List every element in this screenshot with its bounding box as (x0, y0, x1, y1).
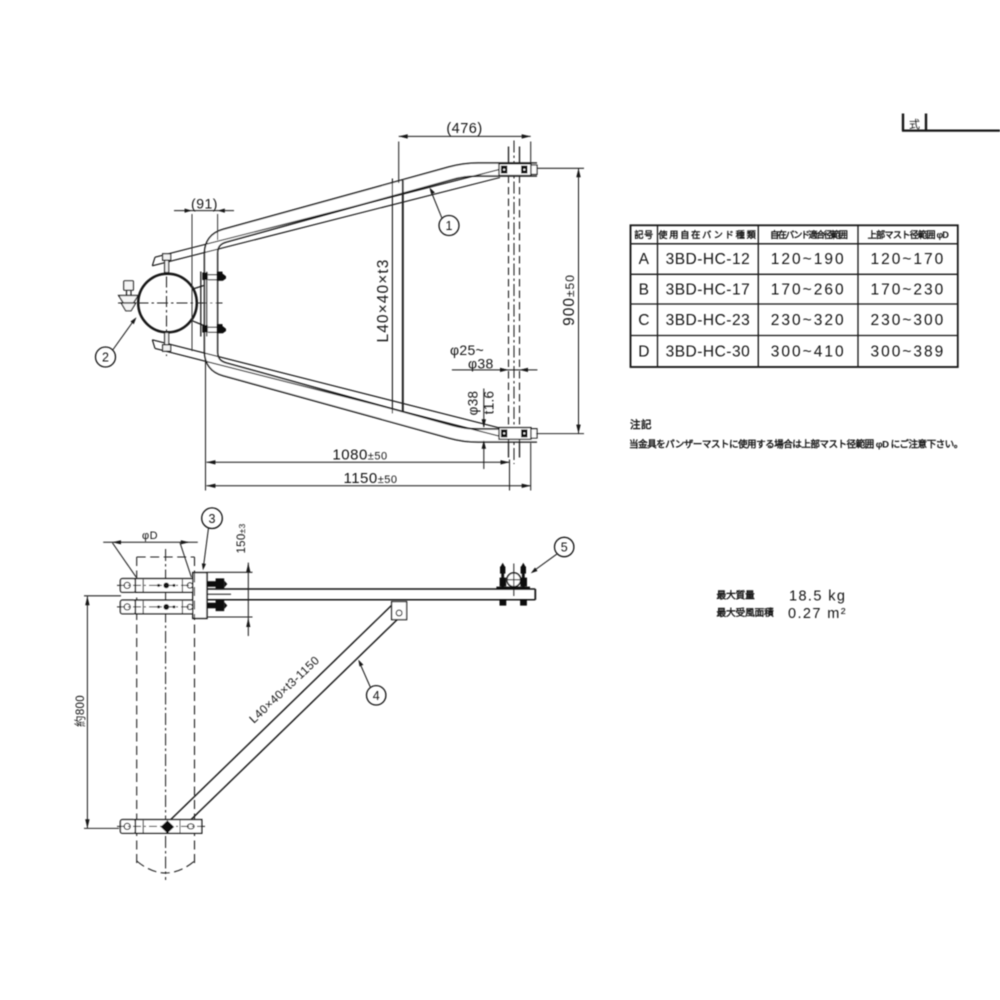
svg-text:φ38: φ38 (468, 356, 494, 372)
svg-text:3: 3 (209, 512, 216, 526)
svg-text:3BD-HC-12: 3BD-HC-12 (666, 251, 751, 268)
svg-text:式: 式 (909, 118, 920, 131)
svg-text:L40×40×t3: L40×40×t3 (375, 258, 392, 342)
svg-text:120~190: 120~190 (771, 251, 846, 268)
svg-text:0.27 m²: 0.27 m² (788, 606, 847, 622)
svg-text:C: C (638, 312, 649, 329)
svg-text:当金具をパンザーマストに使用する場合は上部マスト径範囲 φD: 当金具をパンザーマストに使用する場合は上部マスト径範囲 φD にご注意下さい。 (629, 439, 963, 451)
svg-text:(476): (476) (446, 121, 482, 137)
svg-text:D: D (638, 344, 649, 361)
svg-text:300~410: 300~410 (771, 344, 846, 361)
svg-text:A: A (639, 251, 650, 268)
svg-text:L40×40×t3-1150: L40×40×t3-1150 (246, 653, 322, 726)
svg-text:170~230: 170~230 (871, 281, 946, 298)
svg-text:記号: 記号 (634, 229, 653, 240)
svg-text:2: 2 (102, 351, 109, 365)
svg-text:18.5 kg: 18.5 kg (789, 589, 846, 605)
svg-text:3BD-HC-17: 3BD-HC-17 (666, 281, 751, 298)
svg-text:4: 4 (373, 689, 380, 703)
svg-text:230~320: 230~320 (771, 312, 846, 329)
svg-text:300~389: 300~389 (871, 344, 946, 361)
svg-text:φ38: φ38 (466, 391, 481, 416)
svg-text:150±3: 150±3 (236, 523, 248, 553)
svg-text:230~300: 230~300 (871, 312, 946, 329)
svg-text:約800: 約800 (73, 695, 87, 727)
svg-text:B: B (639, 281, 649, 298)
svg-text:最大受風面積: 最大受風面積 (717, 606, 774, 619)
svg-text:1080±50: 1080±50 (332, 446, 387, 463)
svg-text:φD: φD (142, 530, 158, 542)
svg-text:1150±50: 1150±50 (343, 470, 397, 487)
svg-text:3BD-HC-23: 3BD-HC-23 (666, 312, 751, 329)
svg-text:注記: 注記 (630, 418, 652, 431)
svg-text:5: 5 (561, 541, 568, 555)
svg-text:自在バンド適合径範囲: 自在バンド適合径範囲 (770, 229, 848, 240)
svg-text:3BD-HC-30: 3BD-HC-30 (666, 344, 751, 361)
svg-text:(91): (91) (191, 196, 218, 212)
svg-text:上部マスト径範囲 φD: 上部マスト径範囲 φD (868, 229, 950, 240)
svg-text:1: 1 (446, 219, 453, 233)
svg-text:900±50: 900±50 (561, 274, 578, 326)
svg-text:使用自在バンド種類: 使用自在バンド種類 (657, 229, 757, 240)
svg-text:最大質量: 最大質量 (717, 589, 755, 602)
svg-text:120~170: 120~170 (871, 251, 946, 268)
svg-text:170~260: 170~260 (771, 281, 846, 298)
